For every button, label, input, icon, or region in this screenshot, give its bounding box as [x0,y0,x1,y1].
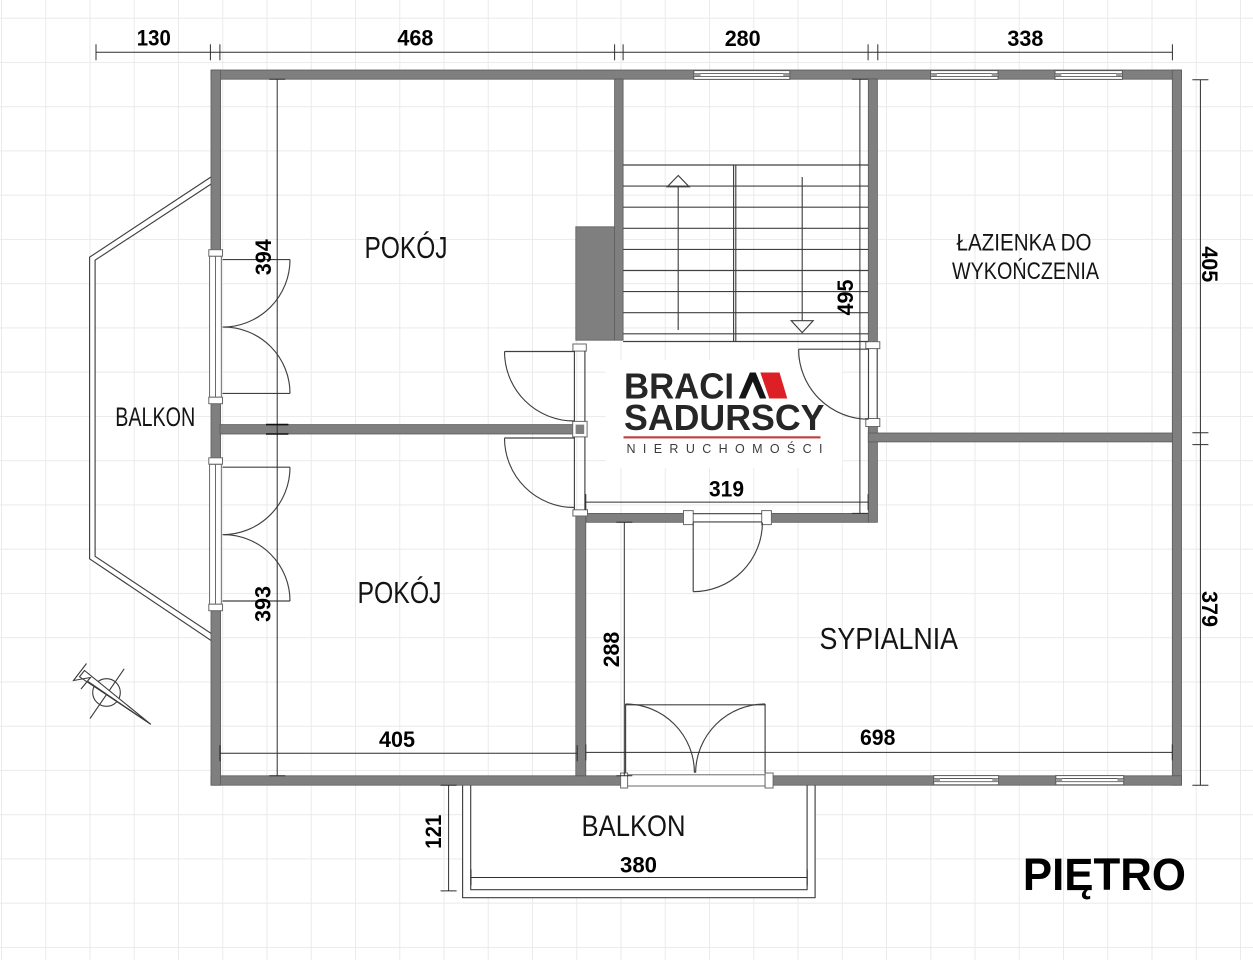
svg-text:468: 468 [397,25,433,50]
svg-text:405: 405 [1197,246,1222,282]
svg-text:NIERUCHOMOŚCI: NIERUCHOMOŚCI [627,441,823,456]
svg-text:PIĘTRO: PIĘTRO [1023,849,1186,900]
svg-text:288: 288 [599,632,624,668]
svg-text:SYPIALNIA: SYPIALNIA [820,621,959,656]
svg-text:405: 405 [379,727,415,752]
svg-text:POKÓJ: POKÓJ [365,230,448,265]
svg-text:BALKON: BALKON [582,810,686,843]
svg-text:393: 393 [251,586,276,622]
svg-text:121: 121 [421,815,446,849]
svg-text:WYKOŃCZENIA: WYKOŃCZENIA [952,258,1099,285]
svg-text:POKÓJ: POKÓJ [358,575,442,610]
svg-text:338: 338 [1007,26,1043,51]
svg-text:495: 495 [833,280,858,316]
svg-text:698: 698 [860,725,895,750]
svg-text:SADURSCY: SADURSCY [624,397,825,438]
svg-text:ŁAZIENKA DO: ŁAZIENKA DO [957,229,1092,256]
svg-text:319: 319 [709,477,744,502]
svg-text:394: 394 [251,239,276,275]
svg-text:280: 280 [725,26,761,51]
svg-text:380: 380 [620,853,657,878]
svg-text:130: 130 [137,25,171,50]
svg-text:BALKON: BALKON [115,402,195,432]
svg-text:379: 379 [1197,591,1222,627]
